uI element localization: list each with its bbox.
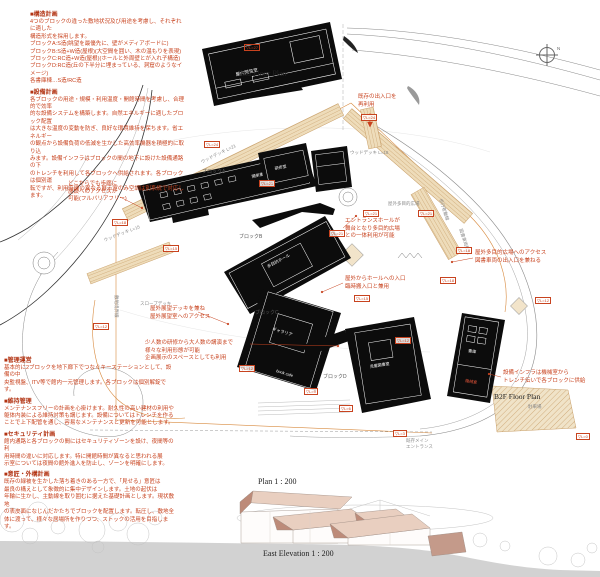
annotation-hall-use: 少人数の研修から大人数の講演まで様々な利用形態が可能企画展示のスペースとしても利… xyxy=(145,340,233,363)
road-north xyxy=(343,24,600,132)
section-header: ■維持管理 xyxy=(4,398,176,406)
annotation-slope-deck: 屋外展望デッキを兼ね屋外展望室へのアクセス xyxy=(150,306,210,321)
building-2f: 屋内閲覧室 xyxy=(202,22,342,106)
level-marker: ▽L=24 xyxy=(361,114,377,121)
level-marker: ▽L=18 xyxy=(112,219,128,226)
label-main-entrance-1: 既存メイン xyxy=(406,438,429,444)
note-line: ブロックA:S造(眺望を最優先に、壁がメディアボードに) xyxy=(30,41,185,48)
note-line: は大きな温度の変動を防ぎ、良好な環境維持を保ちます。省エネルギー xyxy=(30,126,185,141)
level-marker: ▽L=6 xyxy=(339,405,353,412)
level-marker: ▽L=12 xyxy=(535,297,551,304)
section-header: ■セキュリティ計画 xyxy=(4,431,176,439)
note-line: 体に渡って、様々な居場所を作りつつ、ストックの活用を目指します。 xyxy=(4,517,176,532)
label-boundary: 敷地境界線 xyxy=(114,295,120,318)
annotation-plaza-access: 屋外多目的広場へのアクセス図書車両の出入口を兼ねる xyxy=(475,250,546,265)
note-line: 年輪に生かし、主動線を取り囲むに据えた基礎計画とします。現状敷地 xyxy=(4,494,176,509)
title-elevation-scale: East Elevation 1 : 200 xyxy=(263,549,334,558)
level-marker: ▽L=12 xyxy=(239,365,255,372)
notes-top-left: ■構造計画 4つのブロックの違った敷地状況及び用途を考慮し、それぞれに適した 構… xyxy=(30,8,185,200)
level-marker: ▽L=18 xyxy=(456,247,472,254)
note-line: ブロックB:S造+W造(屋根)(大空間を囲い、木の温もりを表現) xyxy=(30,49,185,56)
level-marker: ▽L=3 xyxy=(393,430,407,437)
note-line: 示室については夜間の館外進入を防止し、ゾーンを明確にします。 xyxy=(4,461,176,468)
label-deck-18: ウッドデッキ L=18 xyxy=(350,150,388,156)
presentation-board: 屋内閲覧室 開架書架 研修室 xyxy=(0,0,600,577)
note-line: 央監視盤、ITV等で館内一元管理します。各ブロックは個別解錠です。 xyxy=(4,380,176,395)
note-line: みます。設備インフラはブロックの間の地下に設けた設備通路の下 xyxy=(30,156,185,171)
annotation-hall-entrance: 屋外からホールへの入口臨時搬入口と兼用 xyxy=(345,276,406,291)
level-marker: ▽L=9 xyxy=(304,388,318,395)
level-marker: ▽L=27 xyxy=(244,44,260,51)
title-2f-plan: 2nd Floor Plan xyxy=(239,69,287,78)
road-sliver-1 xyxy=(343,36,358,53)
level-marker: ▽L=21 xyxy=(363,210,379,217)
level-marker: ▽L=21 xyxy=(329,230,345,237)
level-marker: ▽L=12 xyxy=(395,337,411,344)
label-parking: 駐車場 xyxy=(528,404,542,410)
title-b2f-plan: B2F Floor Plan xyxy=(494,392,540,401)
room-label: 書庫 xyxy=(468,347,477,354)
annotation-infra: 設備インフラは機械室からトレンチ伝いで各ブロックに供給 xyxy=(503,370,585,385)
note-line: ことで上下配管を通し、容易なメンテナンスと更新を可能とします。 xyxy=(4,420,176,427)
block-label-d: ブロックD xyxy=(323,373,347,380)
section-header: ■設備計画 xyxy=(30,89,185,97)
label-slope-deck: スロープデッキ xyxy=(140,301,171,307)
level-marker: ▽L=18 xyxy=(440,277,456,284)
level-marker: ▽L=12 xyxy=(93,323,109,330)
note-line: 各ブロックの用途・規模・利用温度・開館時間を考慮し、合理的で効率 xyxy=(30,97,185,112)
block-label-a: ブロックA xyxy=(202,168,225,175)
title-plan-scale: Plan 1 : 200 xyxy=(258,477,296,486)
note-line: 既存の緑被を生かした落ち着きのある一方で、「見せる」意匠は xyxy=(4,479,176,486)
note-line: ブロックD:RC造(丘の下半分に埋まっている、洞窟のようなイメージ) xyxy=(30,63,185,78)
label-main-entrance-2: エントランス xyxy=(406,444,433,450)
note-line: 的な設備システムを構築します。自然エネルギーに適したブロック配置 xyxy=(30,111,185,126)
section-header: ■構造計画 xyxy=(30,11,185,19)
note-line: の観点から設備負荷の低減を生かした高効率機器を積極的に取り込 xyxy=(30,141,185,156)
north-compass-icon: N xyxy=(536,44,560,66)
note-line: の表皮面になじんだかたちでブロックを配置します。転圧し、敷地全 xyxy=(4,509,176,516)
note-line: 4つのブロックの違った敷地状況及び用途を考慮し、それぞれに適した xyxy=(30,19,185,34)
block-label-b: ブロックB xyxy=(239,233,262,240)
road-sliver-2 xyxy=(407,86,419,105)
level-marker: ▽L=21 xyxy=(259,180,275,187)
level-marker: ▽L=15 xyxy=(163,245,179,252)
block-label-c: ブロックC xyxy=(255,309,279,316)
svg-text:N: N xyxy=(557,46,560,51)
level-marker: ▽L=24 xyxy=(204,141,220,148)
label-plaza: 屋外多目的広場 xyxy=(388,201,420,207)
notes-bottom-left: ■管理運営 基本的に2ブロックを地下廊下でつなぐキーステーションとして、設備の中… xyxy=(4,354,176,531)
note-line: 用時間の違いに対応します。特に開館時間が異なると思われる展 xyxy=(4,454,176,461)
note-line: 各書庫棟…S造/RC造 xyxy=(30,78,185,85)
level-marker: ▽L=15 xyxy=(354,295,370,302)
annotation-access: どこからでも歩廊に施設へのアクセスが可能(フルバリアフリー) xyxy=(68,181,127,204)
annotation-entrance-hall: エントランスホールが舞台となり多目的広場との一体利用が可能 xyxy=(345,218,400,241)
level-marker: ▽L=0 xyxy=(576,433,590,440)
note-line: 基本的に2ブロックを地下廊下でつなぐキーステーションとして、設備の中 xyxy=(4,365,176,380)
level-marker: ▽L=21 xyxy=(418,210,434,217)
note-line: メンテナンスフリーの計画を心掛けます。耐久性の高い建材の利用や xyxy=(4,406,176,413)
note-line: 館内通路と各ブロックの間にはセキュリティゾーンを設け、夜間等の利 xyxy=(4,439,176,454)
annotation-existing-entrance: 既存の出入口を再利用 xyxy=(358,94,397,109)
